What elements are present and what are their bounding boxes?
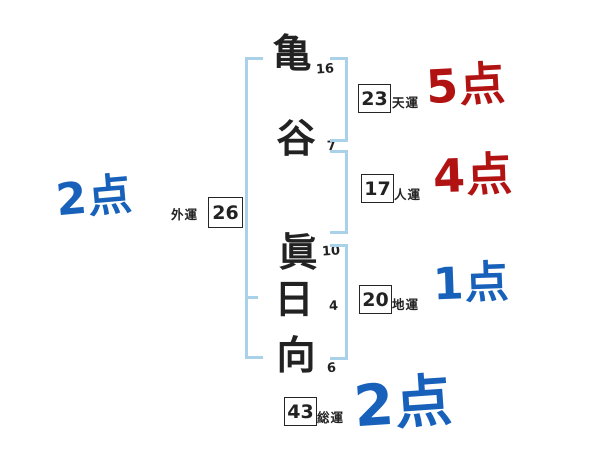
name-char-2: 谷: [272, 120, 320, 159]
name-fortune-diagram: 2点 外運 26 亀 谷 眞 日 向 16 7 10 4 6 23 天運 17 …: [0, 0, 600, 470]
tenun-label: 天運: [392, 92, 419, 111]
soun-score: 2点: [352, 373, 454, 437]
gaiun-value-box: 26: [208, 197, 243, 228]
gaiun-label: 外運: [171, 204, 198, 223]
tenun-bracket: [330, 57, 348, 142]
chiun-value-box: 20: [359, 285, 392, 314]
tenun-value-box: 23: [358, 84, 391, 113]
soun-label: 総運: [317, 407, 344, 426]
chiun-bracket: [330, 244, 348, 360]
jinun-score: 4点: [432, 151, 514, 200]
chiun-label: 地運: [392, 294, 419, 313]
jinun-value-box: 17: [361, 174, 394, 203]
name-char-1: 亀: [268, 35, 316, 74]
chiun-score: 1点: [432, 261, 510, 308]
soun-value-box: 43: [284, 397, 317, 426]
gaiun-bracket-tick: [247, 296, 258, 299]
name-char-5: 向: [272, 337, 320, 376]
stroke-count-5: 6: [326, 361, 336, 377]
jinun-bracket: [330, 150, 348, 234]
jinun-label: 人運: [394, 184, 421, 203]
gaiun-bracket: [245, 57, 263, 359]
tenun-score: 5点: [425, 60, 507, 110]
gaiun-score: 2点: [54, 173, 134, 224]
name-char-4: 日: [270, 281, 318, 320]
name-char-3: 眞: [274, 234, 322, 273]
